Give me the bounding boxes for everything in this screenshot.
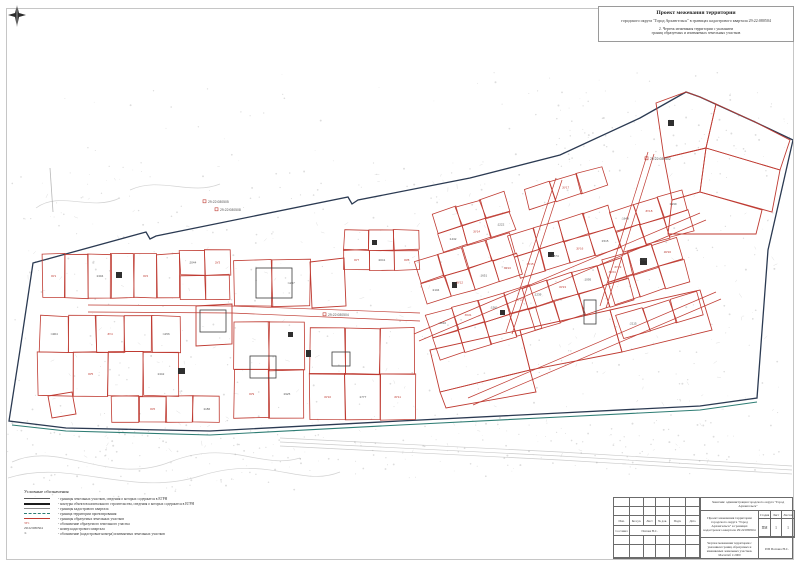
texture-dot — [752, 312, 753, 313]
texture-dot — [212, 232, 214, 234]
texture-tick — [603, 372, 606, 374]
texture-dot — [676, 373, 677, 374]
texture-dot — [542, 208, 543, 209]
texture-dot — [87, 147, 88, 148]
texture-dot — [617, 286, 618, 287]
texture-tick — [388, 241, 393, 242]
texture-dot — [185, 260, 186, 261]
texture-dot — [653, 439, 654, 440]
texture-dot — [718, 137, 719, 138]
parcel-boundary — [393, 230, 419, 251]
texture-dot — [619, 170, 621, 172]
texture-dot — [729, 327, 730, 328]
texture-dot — [576, 443, 578, 445]
texture-tick — [745, 213, 747, 214]
texture-dot — [509, 296, 510, 297]
texture-dot — [427, 353, 428, 354]
texture-dot — [363, 366, 365, 368]
texture-dot — [615, 242, 616, 243]
texture-dot — [475, 209, 477, 211]
parcel-label: :1304 — [96, 274, 104, 278]
stamp-empty-cell — [670, 526, 686, 536]
texture-dot — [315, 435, 316, 436]
texture-dot — [43, 477, 45, 479]
texture-dot — [230, 357, 232, 359]
railway-line — [280, 438, 792, 466]
texture-dot — [90, 335, 92, 337]
legend-item-label: - контуры объектов капитального строител… — [58, 502, 194, 506]
texture-dot — [758, 118, 759, 119]
texture-dot — [405, 245, 407, 247]
stamp-col-header: Изм. — [614, 516, 630, 526]
texture-dot — [610, 434, 611, 435]
texture-dot — [765, 170, 766, 171]
parcel-boundary — [68, 315, 96, 352]
texture-dot — [413, 184, 415, 186]
texture-dot — [685, 143, 686, 144]
texture-dot — [710, 422, 712, 424]
texture-dot — [181, 206, 182, 207]
texture-dot — [82, 196, 83, 197]
texture-tick — [694, 195, 695, 197]
texture-dot — [568, 153, 570, 155]
texture-dot — [275, 173, 277, 175]
texture-dot — [354, 384, 355, 385]
parcel-boundary — [268, 322, 305, 371]
texture-dot — [472, 420, 473, 421]
texture-dot — [674, 105, 675, 106]
texture-dot — [536, 435, 537, 436]
texture-dot — [603, 117, 605, 119]
terrain-line — [36, 198, 120, 208]
texture-dot — [104, 361, 105, 362]
texture-dot — [355, 444, 356, 445]
texture-dot — [249, 472, 251, 474]
texture-tick — [529, 242, 531, 246]
texture-dot — [250, 269, 252, 271]
texture-dot — [147, 435, 149, 437]
texture-dot — [632, 423, 634, 425]
texture-dot — [556, 144, 557, 145]
legend-item-label: - обозначение образуемого земельного уча… — [58, 522, 130, 526]
texture-dot — [696, 351, 698, 353]
texture-dot — [480, 185, 481, 186]
texture-dot — [477, 374, 478, 375]
texture-tick — [252, 338, 255, 340]
map-canvas: ЗУ1:1304ЗУ2:2044ЗУ3:1904ЗУ4:1156ЗУ5:1342… — [0, 0, 800, 565]
texture-tick — [716, 342, 720, 343]
texture-dot — [716, 139, 718, 141]
texture-dot — [635, 115, 636, 116]
texture-dot — [74, 429, 75, 430]
texture-tick — [359, 430, 361, 432]
texture-dot — [494, 72, 495, 73]
texture-dot — [729, 313, 731, 315]
texture-dot — [106, 180, 107, 181]
texture-dot — [320, 120, 322, 122]
texture-dot — [94, 102, 95, 103]
texture-dot — [32, 444, 34, 446]
texture-dot — [224, 139, 225, 140]
texture-dot — [92, 313, 93, 314]
texture-dot — [698, 147, 699, 148]
texture-dot — [522, 260, 523, 261]
texture-dot — [529, 425, 530, 426]
parcel-label: :2104 — [432, 288, 440, 292]
texture-dot — [285, 277, 287, 279]
texture-dot — [87, 466, 88, 467]
stamp-empty-cell — [614, 507, 630, 516]
legend-text-sample: :1 — [24, 532, 27, 535]
texture-tick — [707, 459, 709, 463]
texture-dot — [733, 145, 735, 147]
texture-dot — [385, 457, 386, 458]
texture-dot — [308, 280, 309, 281]
parcel-label: ЗУ7 — [354, 258, 360, 262]
texture-dot — [641, 130, 642, 131]
texture-dot — [360, 443, 361, 444]
texture-dot — [231, 478, 232, 479]
texture-dot — [422, 336, 423, 337]
parcel-label: :1515 — [601, 239, 609, 243]
texture-dot — [743, 238, 744, 239]
texture-dot — [609, 318, 611, 320]
texture-dot — [356, 312, 358, 314]
texture-dot — [605, 135, 607, 137]
parcel-label: ЗУ23 — [559, 285, 566, 289]
texture-dot — [763, 454, 764, 455]
texture-dot — [272, 455, 273, 456]
texture-dot — [166, 128, 167, 129]
texture-tick — [404, 386, 405, 388]
texture-dot — [169, 277, 171, 279]
texture-dot — [459, 433, 460, 434]
texture-dot — [389, 336, 390, 337]
texture-tick — [213, 347, 216, 348]
texture-dot — [258, 391, 260, 393]
texture-dot — [42, 183, 43, 184]
texture-dot — [281, 263, 282, 264]
texture-dot — [545, 436, 546, 437]
texture-tick — [226, 417, 229, 419]
texture-dot — [635, 144, 636, 145]
texture-dot — [450, 234, 451, 235]
texture-dot — [615, 217, 617, 219]
texture-dot — [602, 161, 603, 162]
stamp-col-header: Дата — [686, 516, 700, 526]
texture-dot — [355, 473, 356, 474]
texture-tick — [106, 443, 108, 446]
texture-dot — [582, 441, 583, 442]
texture-dot — [45, 452, 46, 453]
texture-dot — [253, 452, 254, 453]
texture-dot — [107, 437, 108, 438]
texture-tick — [372, 380, 373, 382]
texture-dot — [164, 393, 165, 394]
texture-dot — [771, 103, 772, 104]
texture-dot — [209, 463, 210, 464]
stamp-empty-cell — [644, 545, 656, 558]
parcel-label: ЗУ24 — [609, 270, 616, 274]
texture-tick — [285, 360, 289, 361]
texture-dot — [669, 106, 670, 107]
texture-dot — [93, 261, 95, 263]
texture-dot — [609, 435, 610, 436]
texture-dot — [488, 292, 489, 293]
texture-dot — [695, 75, 697, 77]
texture-dot — [65, 454, 67, 456]
texture-dot — [375, 429, 376, 430]
texture-dot — [187, 477, 188, 478]
texture-dot — [447, 324, 449, 326]
texture-dot — [663, 429, 665, 431]
parcel-label: :1186 — [203, 407, 211, 411]
texture-dot — [170, 462, 171, 463]
stamp-right: Заказчик: администрация городского округ… — [700, 498, 795, 558]
texture-dot — [549, 78, 550, 79]
texture-dot — [676, 145, 678, 147]
texture-tick — [494, 406, 497, 407]
building-footprint — [288, 332, 293, 337]
stamp-empty-cell — [630, 498, 644, 507]
texture-dot — [478, 388, 479, 389]
texture-dot — [639, 375, 640, 376]
texture-dot — [745, 397, 746, 398]
texture-dot — [569, 162, 570, 163]
texture-dot — [317, 189, 319, 191]
texture-dot — [195, 457, 197, 459]
texture-dot — [484, 372, 486, 374]
texture-dot — [176, 211, 178, 213]
project-title: Проект межевания территории — [599, 10, 793, 16]
texture-dot — [777, 412, 778, 413]
parcel-boundary — [509, 307, 542, 337]
texture-dot — [411, 291, 412, 292]
parcel-label: ЗУ22 — [516, 297, 523, 301]
stamp-empty-cell — [670, 498, 686, 507]
texture-tick — [321, 232, 325, 233]
texture-dot — [624, 436, 625, 437]
stamp-stage-value: ПМ — [759, 519, 771, 537]
stamp-empty-cell — [630, 536, 644, 545]
texture-dot — [499, 206, 500, 207]
texture-dot — [271, 233, 273, 235]
building-outline — [250, 356, 276, 378]
texture-tick — [360, 297, 365, 298]
texture-tick — [25, 338, 26, 340]
texture-dot — [386, 342, 388, 344]
texture-dot — [552, 198, 553, 199]
stamp-empty-cell — [656, 498, 670, 507]
texture-dot — [35, 425, 36, 426]
legend-title: Условные обозначения — [24, 489, 334, 494]
texture-dot — [190, 479, 192, 481]
texture-dot — [503, 261, 504, 262]
texture-dot — [165, 441, 167, 443]
texture-tick — [394, 380, 395, 383]
texture-dot — [235, 327, 237, 329]
stamp-empty-cell — [630, 507, 644, 516]
texture-dot — [333, 333, 334, 334]
parcel-label: :2115 — [629, 321, 637, 325]
stamp-sheet-value: 1 — [771, 519, 782, 537]
texture-dot — [21, 430, 23, 432]
texture-dot — [140, 162, 141, 163]
texture-dot — [634, 287, 635, 288]
parcel-label: :1239 — [534, 293, 542, 297]
texture-dot — [705, 420, 707, 422]
texture-dot — [636, 72, 637, 73]
parcel-label: ЗУ11 — [394, 395, 401, 399]
parcel-label: :1999 — [669, 202, 677, 206]
texture-dot — [501, 338, 502, 339]
texture-dot — [656, 420, 657, 421]
texture-dot — [121, 341, 123, 343]
texture-dot — [337, 459, 339, 461]
texture-dot — [373, 454, 375, 456]
texture-dot — [132, 443, 133, 444]
quarter-marker — [323, 313, 326, 316]
texture-dot — [233, 445, 234, 446]
texture-dot — [209, 190, 210, 191]
texture-dot — [231, 299, 232, 300]
texture-dot — [74, 435, 75, 436]
parcel-boundary — [554, 294, 585, 322]
parcel-label: :1777 — [359, 395, 367, 399]
texture-dot — [582, 105, 583, 106]
texture-dot — [414, 213, 415, 214]
texture-dot — [539, 372, 540, 373]
texture-dot — [385, 468, 387, 470]
texture-dot — [628, 282, 629, 283]
texture-dot — [186, 340, 188, 342]
texture-dot — [580, 164, 581, 165]
texture-dot — [259, 447, 261, 449]
texture-dot — [188, 226, 189, 227]
texture-dot — [374, 416, 375, 417]
texture-dot — [87, 184, 88, 185]
texture-dot — [122, 167, 123, 168]
texture-dot — [35, 453, 37, 455]
texture-dot — [14, 319, 15, 320]
terrain-line — [130, 184, 220, 190]
texture-dot — [28, 251, 29, 252]
texture-dot — [618, 284, 619, 285]
texture-dot — [279, 187, 280, 188]
texture-dot — [436, 439, 437, 440]
texture-dot — [355, 461, 356, 462]
texture-dot — [642, 378, 643, 379]
parcel-label: ЗУ16 — [576, 247, 583, 251]
texture-dot — [150, 355, 152, 357]
texture-dot — [469, 168, 470, 169]
texture-dot — [18, 380, 19, 381]
texture-dot — [259, 196, 260, 197]
stamp-empty-cell — [656, 536, 670, 545]
texture-dot — [689, 473, 690, 474]
texture-dot — [11, 466, 13, 468]
texture-dot — [569, 159, 571, 161]
texture-dot — [582, 393, 583, 394]
parcel-boundary — [479, 191, 510, 218]
texture-dot — [635, 101, 636, 102]
texture-dot — [300, 462, 302, 464]
texture-dot — [315, 150, 316, 151]
texture-dot — [528, 93, 529, 94]
texture-dot — [695, 247, 697, 249]
texture-dot — [440, 461, 441, 462]
legend: Условные обозначения - границы земельных… — [24, 489, 334, 536]
texture-tick — [413, 406, 415, 407]
legend-item-label: - границы образуемых земельных участков — [58, 517, 124, 521]
texture-dot — [61, 412, 62, 413]
stamp-col-header: № док. — [656, 516, 670, 526]
texture-dot — [320, 183, 322, 185]
parcel-label: ЗУ9 — [249, 392, 255, 396]
stamp-empty-cell — [670, 536, 686, 545]
stamp-organization: ИП Попова Н.С. — [759, 538, 795, 559]
texture-dot — [128, 367, 129, 368]
texture-dot — [474, 327, 476, 329]
texture-dot — [451, 399, 452, 400]
texture-dot — [211, 443, 212, 444]
texture-dot — [162, 362, 163, 363]
texture-dot — [717, 441, 718, 442]
parcel-boundary — [124, 316, 151, 352]
texture-dot — [186, 225, 187, 226]
texture-tick — [157, 362, 160, 363]
texture-tick — [412, 450, 413, 453]
texture-tick — [469, 193, 470, 196]
texture-dot — [148, 387, 149, 388]
parcel-boundary — [234, 260, 273, 307]
texture-dot — [565, 433, 566, 434]
texture-dot — [154, 251, 155, 252]
texture-dot — [701, 138, 702, 139]
terrain-line — [12, 453, 300, 469]
texture-tick — [105, 435, 107, 437]
parcel-label: :1156 — [162, 332, 170, 336]
texture-dot — [328, 458, 330, 460]
texture-dot — [158, 447, 159, 448]
texture-dot — [288, 292, 290, 294]
texture-dot — [730, 93, 731, 94]
texture-dot — [711, 324, 712, 325]
drawing-name-line2: границ образуемых и изменяемых земельных… — [599, 31, 793, 35]
parcel-boundary — [659, 260, 690, 289]
building-footprint — [306, 350, 311, 357]
texture-dot — [29, 271, 31, 273]
texture-dot — [697, 250, 699, 252]
texture-dot — [693, 454, 695, 456]
texture-tick — [480, 164, 483, 165]
texture-tick — [301, 241, 303, 243]
texture-dot — [677, 399, 678, 400]
texture-dot — [140, 255, 141, 256]
texture-dot — [229, 338, 230, 339]
texture-dot — [406, 322, 407, 323]
texture-dot — [90, 343, 91, 344]
texture-tick — [296, 389, 299, 392]
texture-dot — [241, 472, 242, 473]
texture-dot — [227, 364, 228, 365]
texture-dot — [711, 113, 713, 115]
parcel-boundary — [440, 370, 536, 408]
texture-dot — [60, 405, 62, 407]
texture-dot — [685, 306, 687, 308]
texture-dot — [258, 415, 260, 417]
texture-dot — [232, 254, 234, 256]
